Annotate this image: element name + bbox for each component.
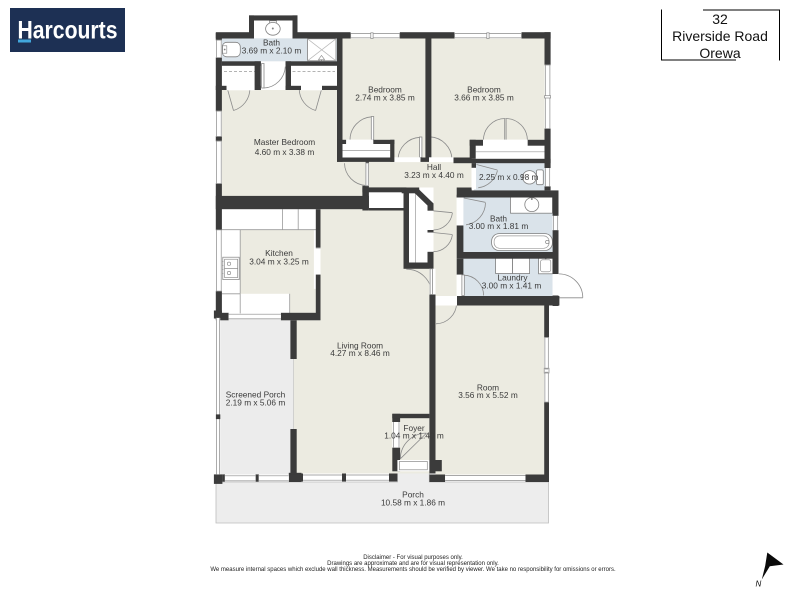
svg-text:3.66 m x 3.85 m: 3.66 m x 3.85 m — [454, 93, 514, 103]
svg-text:3.04 m x 3.25 m: 3.04 m x 3.25 m — [249, 257, 309, 267]
svg-text:4.60 m x 3.38 m: 4.60 m x 3.38 m — [255, 147, 315, 157]
svg-text:3.56 m x 5.52 m: 3.56 m x 5.52 m — [458, 390, 518, 400]
svg-text:2.25 m x 0.98 m: 2.25 m x 0.98 m — [479, 172, 539, 182]
svg-text:We measure internal spaces whi: We measure internal spaces which exclude… — [210, 567, 616, 573]
svg-text:10.58 m x 1.86 m: 10.58 m x 1.86 m — [381, 498, 445, 508]
svg-text:2.19 m x 5.06 m: 2.19 m x 5.06 m — [226, 398, 286, 408]
svg-text:Harcourts: Harcourts — [18, 16, 118, 44]
svg-text:3.23 m x 4.40 m: 3.23 m x 4.40 m — [404, 170, 464, 180]
svg-text:4.27 m x 8.46 m: 4.27 m x 8.46 m — [330, 348, 390, 358]
svg-text:2.74 m x 3.85 m: 2.74 m x 3.85 m — [355, 93, 415, 103]
svg-text:Orewa: Orewa — [699, 45, 740, 61]
svg-text:3.69 m x 2.10 m: 3.69 m x 2.10 m — [242, 45, 302, 55]
svg-text:Riverside Road: Riverside Road — [672, 28, 768, 44]
svg-text:3.00 m x 1.81 m: 3.00 m x 1.81 m — [469, 221, 529, 231]
svg-text:3.00 m x 1.41 m: 3.00 m x 1.41 m — [482, 281, 542, 291]
svg-text:N: N — [756, 580, 762, 589]
svg-text:1.04 m x 1.40 m: 1.04 m x 1.40 m — [384, 431, 444, 441]
svg-text:Master Bedroom: Master Bedroom — [254, 137, 315, 147]
svg-text:32: 32 — [712, 11, 728, 27]
